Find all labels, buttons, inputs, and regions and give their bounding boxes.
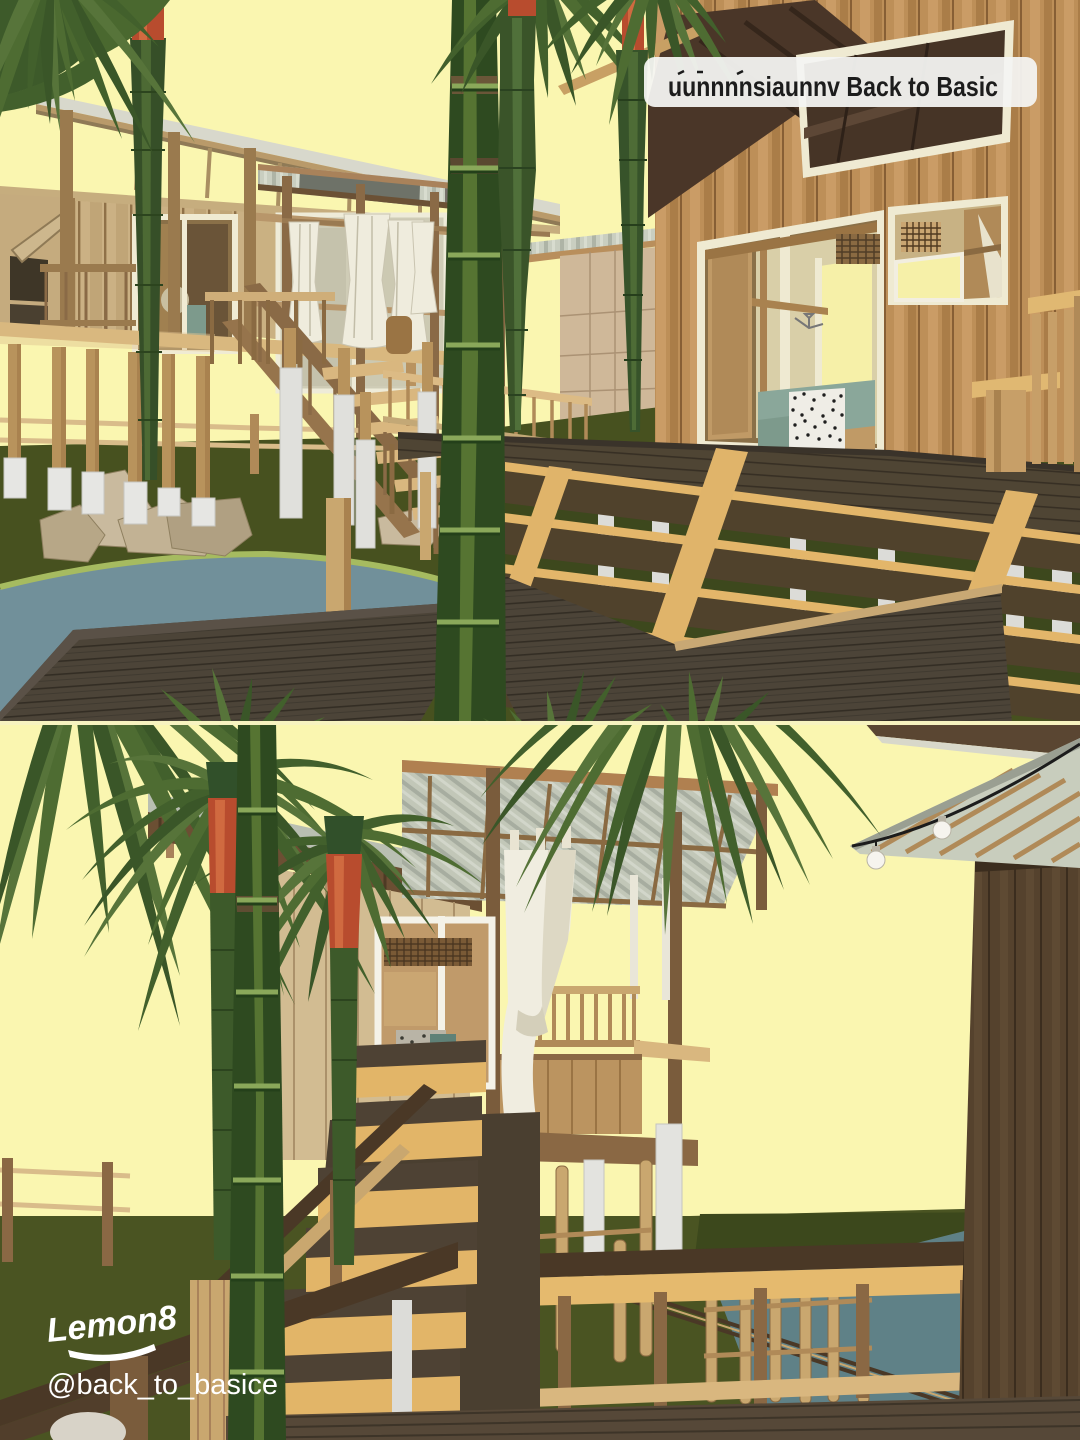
- svg-text:uunnnnsiaunnv Back to Basic: uunnnnsiaunnv Back to Basic: [668, 71, 998, 102]
- svg-text:@back_to_basice: @back_to_basice: [47, 1369, 278, 1401]
